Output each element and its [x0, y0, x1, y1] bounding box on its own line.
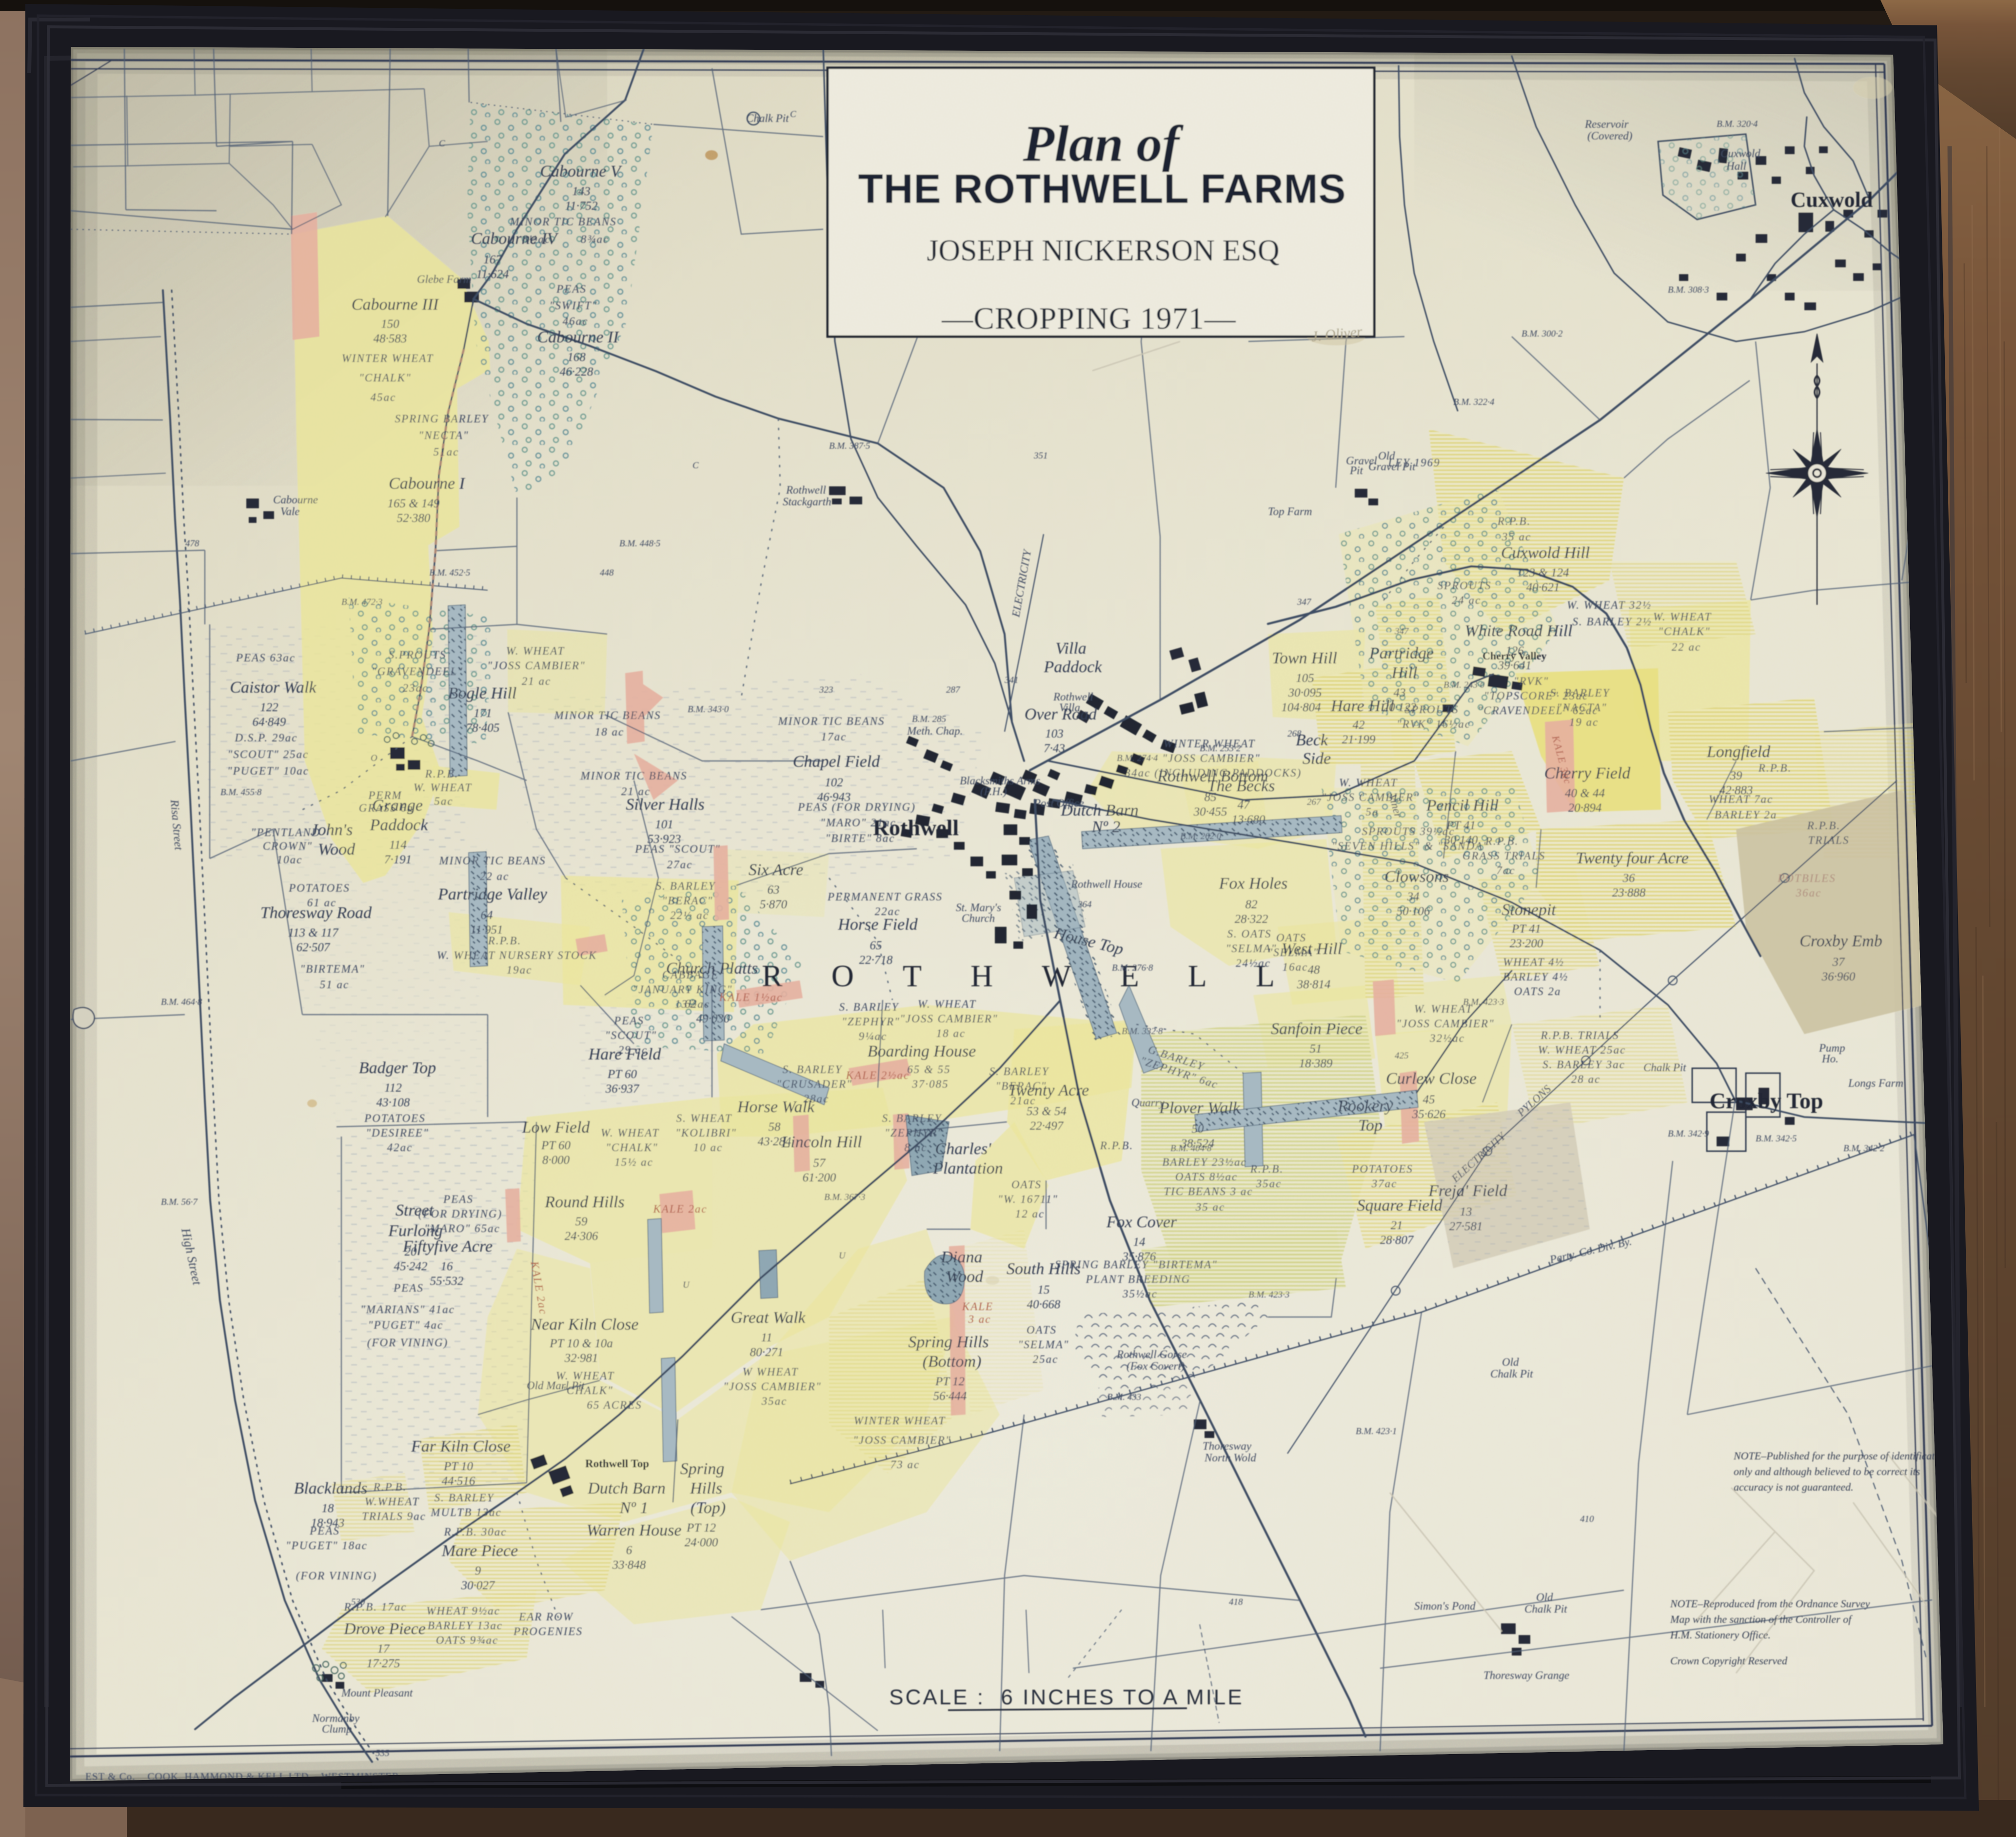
svg-text:Pit: Pit [1349, 464, 1363, 477]
svg-text:OATS 8½ac: OATS 8½ac [1175, 1171, 1238, 1183]
svg-text:27ac: 27ac [667, 859, 693, 871]
svg-text:22ac: 22ac [875, 905, 901, 918]
svg-text:39: 39 [1730, 769, 1743, 782]
svg-text:Old: Old [1502, 1356, 1519, 1368]
svg-text:C: C [790, 109, 796, 120]
svg-text:Rookery: Rookery [1337, 1097, 1393, 1115]
svg-text:D.S.P. 29ac: D.S.P. 29ac [235, 732, 298, 744]
svg-text:143: 143 [572, 185, 591, 198]
svg-text:49·030: 49·030 [696, 1012, 730, 1025]
svg-text:R.P.B.: R.P.B. [1758, 762, 1792, 774]
svg-text:Croxby Top: Croxby Top [1709, 1088, 1823, 1113]
svg-text:15: 15 [1038, 1283, 1050, 1297]
svg-text:SPRING BARLEY: SPRING BARLEY [395, 413, 489, 425]
svg-text:36·960: 36·960 [1821, 970, 1856, 983]
svg-text:45·242: 45·242 [394, 1260, 428, 1273]
svg-text:37·085: 37·085 [911, 1078, 949, 1090]
svg-text:B.M. 243·0: B.M. 243·0 [1443, 680, 1485, 690]
svg-text:45: 45 [1423, 1093, 1435, 1106]
svg-text:BARLEY 23½ac: BARLEY 23½ac [1162, 1156, 1247, 1168]
svg-text:Clump: Clump [322, 1723, 352, 1735]
svg-text:Charles': Charles' [935, 1140, 992, 1158]
svg-text:22·718: 22·718 [859, 954, 893, 967]
svg-text:"CHALK": "CHALK" [561, 1384, 613, 1397]
svg-text:(FOR DRYING): (FOR DRYING) [418, 1208, 502, 1220]
svg-text:101: 101 [655, 818, 673, 831]
svg-text:S. BARLEY: S. BARLEY [882, 1112, 942, 1124]
svg-text:39·641: 39·641 [1498, 659, 1532, 672]
svg-text:122: 122 [260, 701, 278, 714]
svg-text:16ac: 16ac [1283, 961, 1308, 973]
svg-text:30·027: 30·027 [461, 1579, 495, 1592]
svg-text:Plover Walk: Plover Walk [1159, 1099, 1241, 1117]
svg-text:"NECTA": "NECTA" [418, 429, 469, 441]
svg-text:8·000: 8·000 [542, 1154, 570, 1167]
svg-text:11·752: 11·752 [565, 200, 598, 213]
svg-text:53 & 54: 53 & 54 [1027, 1105, 1067, 1118]
svg-text:Near Kiln Close: Near Kiln Close [530, 1316, 638, 1334]
svg-text:MINOR TIC BEANS: MINOR TIC BEANS [553, 709, 661, 721]
svg-text:11: 11 [761, 1331, 772, 1344]
svg-text:B.M. 320·4: B.M. 320·4 [1717, 119, 1758, 129]
svg-text:Six Acre: Six Acre [749, 861, 803, 879]
svg-text:23·200: 23·200 [1510, 937, 1543, 950]
svg-text:Cuxwold: Cuxwold [1720, 147, 1760, 160]
svg-text:14: 14 [1133, 1236, 1146, 1249]
svg-text:35 ac: 35 ac [1502, 531, 1531, 543]
svg-text:9: 9 [475, 1564, 481, 1577]
svg-text:6: 6 [626, 1544, 632, 1557]
svg-text:50: 50 [1192, 1122, 1205, 1136]
svg-text:35ac: 35ac [761, 1395, 788, 1407]
svg-text:B.M. 387·5: B.M. 387·5 [829, 441, 870, 451]
svg-text:BARLEY 4½: BARLEY 4½ [1503, 971, 1568, 983]
svg-text:Square Field: Square Field [1357, 1197, 1443, 1215]
svg-text:36ac: 36ac [1796, 887, 1822, 899]
svg-text:B.M. 274·4: B.M. 274·4 [1117, 753, 1158, 763]
svg-text:accuracy is not guaranteed.: accuracy is not guaranteed. [1734, 1481, 1854, 1493]
svg-text:Stonepit: Stonepit [1502, 901, 1557, 919]
svg-text:(Covered): (Covered) [1587, 130, 1632, 142]
svg-text:B.M. 423·3: B.M. 423·3 [1248, 1290, 1289, 1300]
svg-text:36·937: 36·937 [605, 1082, 640, 1096]
svg-text:Crown Copyright Reserved: Crown Copyright Reserved [1670, 1655, 1788, 1667]
svg-text:S.PROUTS: S.PROUTS [389, 649, 447, 661]
svg-text:22½ ac: 22½ ac [670, 909, 709, 921]
svg-text:B.M. 342·2: B.M. 342·2 [1843, 1143, 1885, 1154]
svg-text:Dutch Barn: Dutch Barn [587, 1479, 666, 1498]
svg-text:POTATOES: POTATOES [1351, 1163, 1413, 1175]
svg-text:17: 17 [377, 1642, 391, 1656]
svg-text:82: 82 [1245, 898, 1258, 911]
svg-text:27·581: 27·581 [1449, 1220, 1483, 1233]
svg-text:PEAS: PEAS [309, 1525, 340, 1537]
svg-text:165 & 149: 165 & 149 [388, 497, 440, 510]
svg-text:Great Walk: Great Walk [731, 1309, 806, 1327]
svg-text:8 ac: 8 ac [905, 1141, 928, 1154]
svg-text:B.M. 367·3: B.M. 367·3 [824, 1192, 865, 1202]
svg-text:B.M. 308·3: B.M. 308·3 [1668, 285, 1709, 295]
svg-text:"PENTLAND: "PENTLAND [251, 826, 321, 839]
svg-text:W.WHEAT: W.WHEAT [365, 1496, 420, 1508]
svg-text:POTBILES: POTBILES [1777, 872, 1836, 884]
svg-text:35·626: 35·626 [1412, 1108, 1446, 1121]
svg-text:Ho.: Ho. [1821, 1053, 1838, 1065]
svg-text:Top Farm: Top Farm [1268, 505, 1312, 518]
svg-text:(P.H.): (P.H.) [980, 785, 1007, 798]
svg-text:PROGENIES: PROGENIES [513, 1625, 583, 1637]
svg-text:"RVK": "RVK" [1514, 675, 1549, 687]
svg-text:B.M. 464·8: B.M. 464·8 [161, 997, 202, 1007]
svg-text:"SELMA": "SELMA" [1268, 946, 1319, 958]
svg-text:U: U [683, 1280, 690, 1290]
svg-text:B.M. 423·1: B.M. 423·1 [1356, 1426, 1397, 1437]
svg-text:"BERAC": "BERAC" [662, 895, 713, 907]
svg-text:24½ac: 24½ac [1236, 957, 1271, 969]
svg-text:Nº 1: Nº 1 [619, 1499, 649, 1517]
svg-text:"JOSS CAMBIER": "JOSS CAMBIER" [1321, 791, 1419, 803]
svg-text:Blacklands: Blacklands [294, 1479, 367, 1498]
svg-text:43·284: 43·284 [758, 1135, 791, 1148]
svg-text:GRASS 6a: GRASS 6a [359, 802, 414, 814]
svg-text:BARLEY 2a: BARLEY 2a [1715, 809, 1778, 821]
svg-text:Pencil Hill: Pencil Hill [1426, 797, 1499, 815]
svg-text:Low Field: Low Field [522, 1118, 591, 1137]
svg-text:S. OATS: S. OATS [1227, 928, 1271, 940]
svg-text:Chalk Pit: Chalk Pit [1643, 1061, 1686, 1074]
svg-text:425: 425 [1395, 1051, 1409, 1061]
svg-text:"JOSS CAMBIER": "JOSS CAMBIER" [723, 1380, 821, 1393]
svg-text:7ac: 7ac [1496, 864, 1515, 877]
svg-text:29 ac: 29 ac [618, 1044, 648, 1056]
svg-text:Sanfoin Piece: Sanfoin Piece [1271, 1020, 1363, 1038]
svg-text:46·228: 46·228 [560, 365, 593, 379]
svg-text:B.M. 253·2: B.M. 253·2 [1200, 743, 1241, 754]
svg-text:Diana: Diana [941, 1248, 983, 1266]
svg-text:104·804: 104·804 [1281, 701, 1321, 714]
svg-text:Rothwell House: Rothwell House [1070, 878, 1142, 890]
svg-text:"PUGET" 10ac: "PUGET" 10ac [227, 765, 309, 777]
svg-text:21 ac: 21 ac [522, 675, 551, 687]
svg-text:267: 267 [1307, 797, 1322, 807]
svg-text:R.P.B.: R.P.B. [1100, 1139, 1133, 1152]
svg-text:W WHEAT: W WHEAT [743, 1366, 799, 1378]
svg-text:13: 13 [1460, 1205, 1472, 1218]
svg-text:Hills: Hills [690, 1479, 722, 1498]
svg-text:Cabourne: Cabourne [273, 494, 318, 506]
svg-text:WHEAT 7ac: WHEAT 7ac [1709, 793, 1773, 805]
svg-text:Map with the sanction of the C: Map with the sanction of the Controller … [1670, 1613, 1853, 1625]
svg-text:TRIALS 9ac: TRIALS 9ac [362, 1510, 426, 1522]
svg-text:KALE 2ac: KALE 2ac [652, 1203, 707, 1215]
svg-text:448: 448 [600, 568, 614, 578]
svg-text:Vale: Vale [280, 505, 300, 518]
svg-text:MINOR TIC BEANS: MINOR TIC BEANS [777, 715, 885, 727]
svg-text:20: 20 [405, 1245, 417, 1258]
svg-text:Drove Piece: Drove Piece [343, 1620, 426, 1638]
svg-text:"PUGET" 4ac: "PUGET" 4ac [368, 1319, 443, 1331]
svg-text:"CHALK": "CHALK" [1658, 625, 1710, 638]
svg-text:Rothwell Gorse: Rothwell Gorse [1116, 1348, 1187, 1360]
svg-text:150: 150 [381, 318, 399, 331]
svg-text:Wood: Wood [318, 840, 356, 859]
svg-text:47: 47 [1238, 799, 1251, 812]
svg-text:323: 323 [819, 685, 833, 695]
svg-text:Partridge Valley: Partridge Valley [437, 885, 548, 903]
svg-text:61 ac: 61 ac [307, 897, 336, 909]
svg-text:36: 36 [1622, 872, 1636, 885]
svg-text:15½ ac: 15½ ac [614, 1156, 653, 1168]
svg-text:"DESIREE": "DESIREE" [366, 1127, 429, 1139]
svg-text:B.M. 285: B.M. 285 [912, 714, 946, 724]
svg-text:59: 59 [575, 1215, 588, 1228]
svg-text:35ac: 35ac [1256, 1178, 1282, 1190]
svg-text:9¼ac: 9¼ac [859, 1030, 887, 1042]
svg-text:287: 287 [946, 685, 961, 695]
svg-text:MINOR TIC BEANS: MINOR TIC BEANS [438, 855, 546, 867]
svg-text:33·848: 33·848 [612, 1558, 646, 1572]
svg-text:W. WHEAT: W. WHEAT [414, 781, 473, 794]
svg-text:38·814: 38·814 [1297, 978, 1331, 991]
svg-text:MINOR TIC BEANS: MINOR TIC BEANS [580, 770, 687, 782]
svg-text:"JOSS CAMBIER": "JOSS CAMBIER" [853, 1434, 951, 1446]
svg-text:10 ac: 10 ac [693, 1141, 723, 1154]
svg-text:North Wold: North Wold [1204, 1452, 1256, 1464]
svg-text:171: 171 [474, 707, 492, 720]
svg-text:PEAS: PEAS [393, 1282, 424, 1294]
svg-text:20·894: 20·894 [1568, 801, 1602, 815]
svg-text:SPRING BARLEY "BIRTEMA": SPRING BARLEY "BIRTEMA" [1055, 1258, 1218, 1271]
svg-text:85: 85 [1205, 791, 1217, 804]
svg-text:S. BARLEY 2½: S. BARLEY 2½ [1572, 616, 1652, 628]
svg-text:80·271: 80·271 [750, 1346, 784, 1359]
svg-text:64: 64 [481, 909, 493, 922]
svg-text:"CRUSADER": "CRUSADER" [776, 1078, 852, 1090]
svg-text:45ac: 45ac [371, 391, 396, 403]
svg-text:5·870: 5·870 [760, 898, 788, 911]
svg-text:W. WHEAT: W. WHEAT [1653, 611, 1712, 623]
svg-text:105: 105 [1296, 672, 1314, 685]
svg-text:(FOR VINING): (FOR VINING) [367, 1337, 448, 1349]
svg-text:KALE: KALE [962, 1300, 993, 1313]
svg-text:61·200: 61·200 [803, 1171, 836, 1184]
svg-text:B.M. 343·0: B.M. 343·0 [688, 704, 729, 715]
svg-text:341: 341 [1004, 675, 1019, 685]
svg-text:W. WHEAT: W. WHEAT [601, 1127, 660, 1139]
svg-text:Badger Top: Badger Top [359, 1059, 436, 1077]
svg-text:R.P.B.: R.P.B. [1250, 1163, 1284, 1175]
svg-text:SPROUTS: SPROUTS [1437, 579, 1491, 592]
svg-text:WINTER WHEAT: WINTER WHEAT [342, 352, 434, 364]
svg-text:PERMANENT GRASS: PERMANENT GRASS [827, 891, 943, 903]
svg-text:40·668: 40·668 [1027, 1298, 1061, 1311]
svg-text:Round Hills: Round Hills [544, 1193, 624, 1211]
svg-text:O: O [371, 753, 377, 763]
svg-text:113 & 117: 113 & 117 [288, 926, 339, 939]
svg-text:18: 18 [322, 1502, 335, 1515]
svg-text:"MARIANS" 41ac: "MARIANS" 41ac [360, 1303, 455, 1316]
svg-text:Old: Old [1536, 1591, 1553, 1603]
svg-text:JOSEPH NICKERSON ESQ: JOSEPH NICKERSON ESQ [927, 234, 1279, 267]
svg-text:63: 63 [768, 883, 780, 897]
svg-text:Cuxwold Hill: Cuxwold Hill [1501, 544, 1590, 562]
svg-text:Cherry Field: Cherry Field [1544, 764, 1631, 782]
svg-text:51ac: 51ac [434, 446, 459, 458]
svg-text:(FOR VINING): (FOR VINING) [296, 1570, 377, 1582]
svg-text:"BIRTE" 8ac: "BIRTE" 8ac [826, 832, 895, 844]
svg-text:C: C [439, 139, 445, 149]
svg-text:24·000: 24·000 [685, 1536, 718, 1549]
svg-text:65 & 55: 65 & 55 [907, 1063, 950, 1076]
svg-text:"NACTA": "NACTA" [1557, 701, 1607, 714]
svg-text:"JOSS CAMBIER": "JOSS CAMBIER" [487, 659, 585, 672]
svg-text:R.P.B.: R.P.B. [1807, 819, 1840, 832]
svg-text:"CHALK": "CHALK" [606, 1141, 658, 1154]
svg-text:B.M. 342·9: B.M. 342·9 [1668, 1129, 1709, 1139]
svg-text:Dutch Barn: Dutch Barn [1060, 801, 1139, 819]
svg-text:Plantation: Plantation [932, 1159, 1003, 1178]
svg-text:Spring: Spring [680, 1460, 725, 1478]
svg-text:SCALE : 6 INCHES TO A MILE: SCALE : 6 INCHES TO A MILE [889, 1685, 1244, 1709]
svg-text:268: 268 [1287, 729, 1302, 739]
svg-text:Cabourne V: Cabourne V [540, 162, 623, 180]
svg-text:Wood: Wood [946, 1268, 984, 1286]
svg-text:PEAS "SCOUT": PEAS "SCOUT" [634, 843, 721, 855]
svg-text:37ac: 37ac [1371, 1178, 1398, 1190]
svg-text:R.P.B.: R.P.B. [425, 768, 458, 780]
svg-text:Chapel Field: Chapel Field [793, 753, 880, 771]
svg-text:B.M. 262·0: B.M. 262·0 [1180, 831, 1222, 841]
svg-text:Fox Cover: Fox Cover [1106, 1213, 1177, 1231]
svg-text:W. WHEAT: W. WHEAT [556, 1370, 615, 1382]
svg-text:40 & 44: 40 & 44 [1565, 787, 1605, 800]
svg-text:23·888: 23·888 [1612, 886, 1646, 899]
svg-text:8¾ac: 8¾ac [581, 233, 609, 245]
svg-text:B.M. 322·4: B.M. 322·4 [1453, 397, 1495, 407]
svg-text:51 ac: 51 ac [320, 978, 349, 991]
svg-text:Stackgarth: Stackgarth [783, 496, 831, 508]
svg-text:"CHALK": "CHALK" [359, 372, 411, 384]
svg-text:22 ac: 22 ac [480, 870, 509, 882]
svg-text:56·444: 56·444 [933, 1390, 967, 1403]
svg-text:"MARO" 21ac: "MARO" 21ac [820, 817, 896, 829]
svg-text:347: 347 [1297, 597, 1312, 607]
svg-text:Nº 2: Nº 2 [1091, 818, 1121, 836]
svg-text:Paddock: Paddock [370, 816, 429, 834]
svg-text:B.M. 448·5: B.M. 448·5 [619, 539, 660, 549]
svg-text:Side: Side [1303, 750, 1331, 768]
svg-text:S. BARLEY: S. BARLEY [435, 1492, 494, 1504]
svg-text:478: 478 [185, 539, 199, 549]
svg-text:48·583: 48·583 [374, 332, 407, 345]
svg-text:28·807: 28·807 [1380, 1234, 1414, 1247]
svg-text:28ac: 28ac [804, 1093, 830, 1105]
svg-text:102: 102 [825, 776, 843, 789]
svg-text:78·405: 78·405 [466, 721, 500, 735]
svg-text:S. BARLEY 3ac: S. BARLEY 3ac [1542, 1058, 1625, 1071]
svg-text:"GRAVENDEEL": "GRAVENDEEL" [372, 665, 463, 678]
svg-text:64·849: 64·849 [253, 716, 286, 729]
svg-text:17·275: 17·275 [367, 1657, 400, 1670]
svg-text:30·455: 30·455 [1193, 805, 1227, 819]
svg-text:28·322: 28·322 [1235, 913, 1268, 926]
svg-text:PT 60: PT 60 [541, 1139, 571, 1152]
svg-text:Cabourne II: Cabourne II [537, 328, 619, 346]
svg-text:Mount Pleasant: Mount Pleasant [341, 1687, 413, 1699]
svg-text:KALE 2½ac: KALE 2½ac [846, 1069, 909, 1081]
svg-text:NOTE–Reproduced from the Ordna: NOTE–Reproduced from the Ordnance Survey [1670, 1597, 1870, 1610]
svg-text:OATS 2a: OATS 2a [1514, 985, 1561, 998]
svg-text:"KOLIBRI": "KOLIBRI" [675, 1127, 736, 1139]
svg-text:Paddock: Paddock [1044, 658, 1103, 676]
svg-text:MULTB 13ac: MULTB 13ac [430, 1506, 501, 1518]
svg-text:44·516: 44·516 [442, 1475, 475, 1488]
svg-text:Far Kiln Close: Far Kiln Close [411, 1438, 511, 1456]
svg-text:123 & 124: 123 & 124 [1517, 566, 1569, 579]
svg-text:W. WHEAT: W. WHEAT [918, 998, 977, 1010]
svg-text:"SWIFT": "SWIFT" [550, 300, 597, 312]
svg-text:SPROUTS 39½ac: SPROUTS 39½ac [1362, 825, 1455, 838]
svg-text:351: 351 [1033, 451, 1048, 461]
svg-text:18·389: 18·389 [1299, 1057, 1333, 1070]
svg-text:Over Road: Over Road [1025, 705, 1097, 723]
svg-text:40·621: 40·621 [1526, 581, 1560, 594]
svg-text:B.M. 56·7: B.M. 56·7 [161, 1197, 198, 1207]
svg-text:Rothwell: Rothwell [786, 484, 826, 496]
svg-text:418: 418 [1229, 1597, 1243, 1607]
svg-text:3 ac: 3 ac [968, 1313, 991, 1325]
svg-text:21 ac: 21 ac [621, 785, 651, 798]
svg-text:"JANUARY KING": "JANUARY KING" [633, 983, 733, 996]
svg-text:"JOSS CAMBIER": "JOSS CAMBIER" [1162, 752, 1260, 764]
svg-text:Hill: Hill [1391, 664, 1418, 682]
svg-text:C: C [692, 460, 699, 471]
svg-text:62·507: 62·507 [296, 941, 331, 954]
svg-text:13·680: 13·680 [1232, 813, 1265, 826]
svg-text:Simon's Pond: Simon's Pond [1414, 1600, 1476, 1612]
svg-text:"SCOUT": "SCOUT" [605, 1029, 657, 1041]
svg-text:18 ac: 18 ac [936, 1027, 966, 1039]
svg-text:34ac (INCLUDING PADDOCKS): 34ac (INCLUDING PADDOCKS) [1125, 767, 1302, 779]
svg-text:POTATOES: POTATOES [288, 882, 350, 894]
svg-text:"SELMA": "SELMA" [1018, 1338, 1069, 1351]
svg-text:SPROUTS: SPROUTS [1404, 703, 1459, 716]
svg-text:EAR ROW: EAR ROW [518, 1611, 573, 1623]
svg-text:168: 168 [567, 351, 586, 364]
svg-text:S. BARLEY: S. BARLEY [656, 880, 716, 892]
svg-text:TIC BEANS 3 ac: TIC BEANS 3 ac [1164, 1185, 1253, 1198]
svg-text:TRIALS: TRIALS [1808, 834, 1850, 846]
svg-text:"W. 16711": "W. 16711" [998, 1193, 1058, 1205]
svg-text:18 ac: 18 ac [595, 726, 624, 738]
svg-text:Twenty four Acre: Twenty four Acre [1576, 849, 1689, 867]
svg-text:W. WHEAT 25ac: W. WHEAT 25ac [1538, 1044, 1626, 1056]
svg-text:PT 12: PT 12 [935, 1375, 965, 1388]
svg-text:R.P.B.: R.P.B. [1485, 835, 1519, 847]
svg-text:PERM: PERM [368, 789, 402, 801]
svg-text:126: 126 [1505, 644, 1524, 658]
svg-text:PEAS: PEAS [443, 1193, 474, 1205]
svg-text:W. WHEAT: W. WHEAT [506, 645, 565, 657]
svg-text:CABBAGE: CABBAGE [662, 969, 719, 981]
svg-text:NOTE–Published for the purpose: NOTE–Published for the purpose of identi… [1733, 1450, 1949, 1462]
svg-text:24 ac: 24 ac [1452, 594, 1481, 606]
svg-text:264: 264 [1078, 899, 1092, 910]
svg-text:POTATOES: POTATOES [364, 1112, 425, 1124]
svg-text:Horse Field: Horse Field [837, 916, 918, 934]
svg-text:5a: 5a [1366, 806, 1379, 818]
svg-text:11·624: 11·624 [476, 268, 509, 281]
